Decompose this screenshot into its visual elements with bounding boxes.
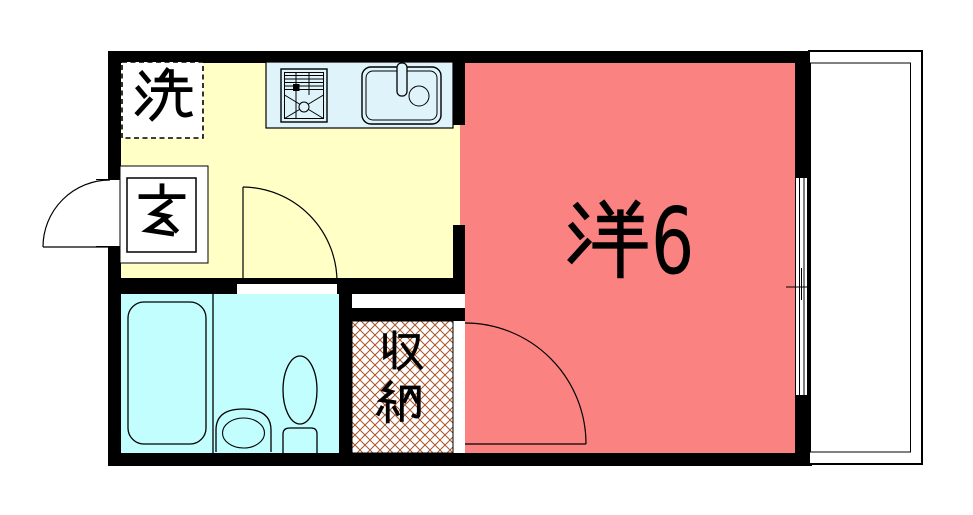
faucet-icon: [397, 63, 407, 96]
laundry-space: [122, 62, 203, 138]
wall-north: [108, 51, 808, 63]
wall-bath-storage: [339, 294, 352, 453]
kitchen-counter: [266, 62, 453, 128]
wall-east-lower: [795, 395, 808, 466]
wall-storage-north: [352, 308, 465, 321]
kitchen-doorway-floor: [453, 125, 460, 225]
floor-plan: 洗 玄 洋6 収納: [0, 0, 973, 515]
balcony-outline: [809, 51, 922, 464]
entrance-opening: [96, 179, 121, 246]
western-room-floor: [465, 63, 795, 453]
wall-west-upper: [108, 51, 121, 179]
wall-kitchen-room-lower: [453, 225, 465, 278]
western-room-size-text: 6: [651, 189, 694, 296]
wall-east-upper: [795, 51, 808, 178]
balcony: [809, 51, 922, 464]
entrance-area: [120, 166, 208, 263]
room-doorway-floor: [460, 125, 466, 225]
floor-plan-svg: 6: [0, 0, 973, 515]
wall-south: [108, 453, 812, 466]
wall-kitchen-room-upper: [453, 63, 465, 125]
bathroom-door-opening: [237, 284, 337, 294]
